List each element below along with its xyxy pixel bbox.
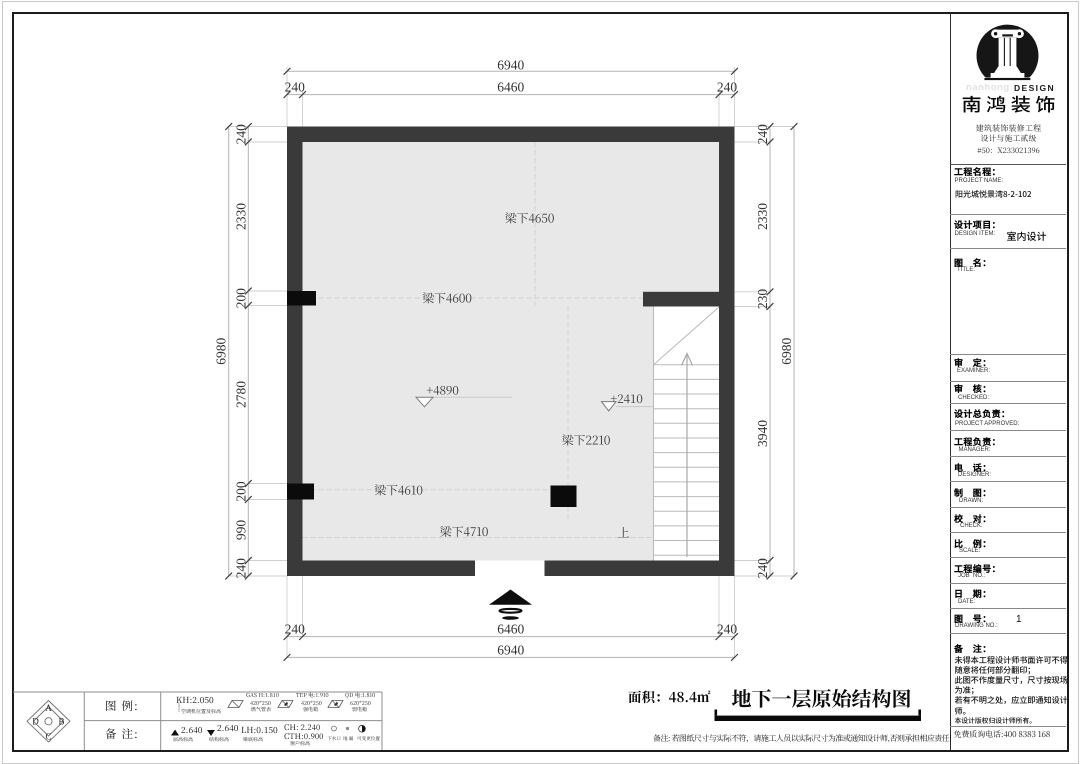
svg-text:6980: 6980 xyxy=(779,337,794,364)
svg-text:梁下2210: 梁下2210 xyxy=(562,432,611,449)
svg-text:+2410: +2410 xyxy=(610,390,643,407)
svg-text:240: 240 xyxy=(285,622,306,637)
svg-text:2780: 2780 xyxy=(234,381,249,408)
svg-text:200: 200 xyxy=(234,288,249,309)
svg-text:梁下4610: 梁下4610 xyxy=(374,482,423,499)
svg-text:C: C xyxy=(45,732,51,742)
svg-text:6940: 6940 xyxy=(497,642,524,657)
svg-text:上: 上 xyxy=(618,524,630,541)
svg-text:240: 240 xyxy=(755,124,770,145)
svg-text:+4890: +4890 xyxy=(426,382,459,399)
svg-text:6940: 6940 xyxy=(497,57,524,72)
svg-text:6460: 6460 xyxy=(497,80,524,95)
svg-text:240: 240 xyxy=(717,80,738,95)
svg-text:200: 200 xyxy=(234,481,249,502)
svg-text:A: A xyxy=(45,703,52,713)
svg-text:梁下4710: 梁下4710 xyxy=(440,523,489,540)
svg-text:3940: 3940 xyxy=(755,420,770,447)
svg-text:240: 240 xyxy=(234,558,249,579)
svg-text:990: 990 xyxy=(234,520,249,541)
svg-text:D: D xyxy=(32,717,39,727)
svg-text:B: B xyxy=(58,717,64,727)
svg-text:240: 240 xyxy=(755,558,770,579)
svg-text:240: 240 xyxy=(285,80,306,95)
svg-text:240: 240 xyxy=(717,622,738,637)
svg-text:6980: 6980 xyxy=(214,337,229,364)
svg-text:梁下4650: 梁下4650 xyxy=(505,210,555,227)
svg-text:6460: 6460 xyxy=(497,622,524,637)
svg-text:梁下4600: 梁下4600 xyxy=(422,289,472,306)
svg-text:2330: 2330 xyxy=(755,203,770,230)
svg-text:2330: 2330 xyxy=(234,203,249,230)
svg-text:230: 230 xyxy=(755,289,770,310)
svg-text:240: 240 xyxy=(234,124,249,145)
